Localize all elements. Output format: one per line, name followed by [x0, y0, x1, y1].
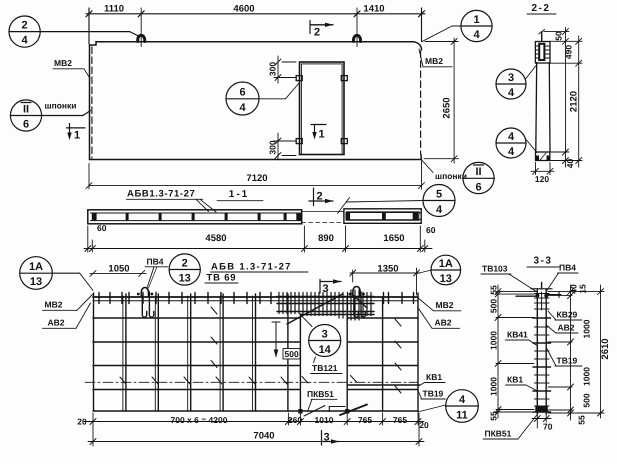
svg-text:55: 55: [489, 285, 499, 295]
svg-text:765: 765: [358, 415, 372, 425]
svg-text:500: 500: [582, 393, 592, 407]
svg-text:2120: 2120: [569, 91, 580, 112]
svg-text:20: 20: [419, 420, 429, 430]
svg-text:4: 4: [508, 131, 515, 143]
svg-text:шпонки: шпонки: [435, 171, 467, 181]
svg-text:4: 4: [473, 29, 480, 41]
svg-text:КВ29: КВ29: [557, 310, 578, 320]
svg-text:20: 20: [77, 417, 87, 427]
svg-text:500: 500: [285, 349, 299, 359]
svg-text:2: 2: [22, 20, 28, 32]
svg-text:490: 490: [564, 45, 574, 59]
svg-text:КВ1: КВ1: [507, 375, 523, 385]
svg-text:1010: 1010: [315, 415, 334, 425]
svg-text:ПВ4: ПВ4: [147, 257, 164, 267]
svg-text:4: 4: [508, 87, 515, 99]
svg-text:1110: 1110: [104, 4, 124, 15]
svg-text:3: 3: [322, 329, 328, 341]
svg-text:МВ2: МВ2: [425, 56, 443, 66]
svg-text:1650: 1650: [383, 233, 404, 244]
svg-text:АБВ 1.3-71-27: АБВ 1.3-71-27: [211, 262, 292, 273]
svg-text:МВ2: МВ2: [45, 300, 63, 310]
svg-text:7120: 7120: [246, 173, 267, 184]
svg-text:300: 300: [268, 62, 278, 76]
svg-text:МВ2: МВ2: [54, 58, 72, 68]
svg-text:АВ2: АВ2: [48, 318, 65, 328]
svg-text:55: 55: [577, 415, 587, 425]
svg-text:700 х 6 = 4200: 700 х 6 = 4200: [171, 415, 228, 425]
svg-text:4: 4: [22, 35, 29, 47]
svg-text:2-2: 2-2: [532, 3, 551, 14]
svg-text:6: 6: [23, 119, 29, 131]
svg-text:13: 13: [179, 273, 191, 285]
svg-text:890: 890: [318, 233, 334, 244]
svg-text:4: 4: [239, 102, 246, 114]
svg-text:1000: 1000: [489, 331, 499, 350]
svg-text:260: 260: [288, 415, 302, 425]
svg-text:15: 15: [578, 284, 588, 294]
svg-text:АВ2: АВ2: [435, 318, 452, 328]
svg-text:1: 1: [473, 14, 479, 26]
svg-text:ПВ4: ПВ4: [559, 263, 576, 273]
svg-text:13: 13: [440, 273, 452, 285]
svg-text:1000: 1000: [582, 319, 592, 338]
svg-text:1050: 1050: [108, 264, 129, 275]
svg-text:2610: 2610: [600, 338, 611, 359]
svg-text:АВ2: АВ2: [558, 323, 575, 333]
svg-text:КВ1: КВ1: [426, 372, 442, 382]
svg-text:14: 14: [319, 344, 332, 356]
svg-text:шпонки: шпонки: [45, 101, 77, 111]
svg-text:МВ2: МВ2: [436, 300, 454, 310]
svg-text:40: 40: [565, 159, 575, 169]
svg-text:4: 4: [459, 394, 466, 406]
svg-text:1000: 1000: [582, 367, 592, 386]
svg-text:2650: 2650: [442, 97, 453, 118]
svg-text:II: II: [23, 104, 29, 116]
svg-text:II: II: [475, 166, 481, 178]
svg-text:2: 2: [182, 258, 188, 270]
svg-text:6: 6: [475, 182, 481, 194]
svg-text:1: 1: [319, 129, 325, 141]
svg-text:60: 60: [426, 225, 436, 235]
svg-text:3-3: 3-3: [534, 256, 553, 267]
svg-text:ТВ19: ТВ19: [423, 389, 444, 399]
svg-text:ПКВ51: ПКВ51: [485, 429, 512, 439]
svg-text:4: 4: [436, 204, 443, 216]
svg-text:500: 500: [489, 299, 499, 313]
svg-text:1350: 1350: [377, 264, 398, 275]
svg-text:ТВ121: ТВ121: [312, 363, 338, 373]
svg-text:5: 5: [436, 189, 442, 201]
svg-text:2: 2: [314, 27, 320, 39]
svg-text:ПКВ51: ПКВ51: [307, 389, 334, 399]
svg-text:1А: 1А: [29, 261, 43, 273]
svg-text:3: 3: [508, 72, 514, 84]
svg-text:120: 120: [535, 174, 549, 184]
svg-text:1410: 1410: [363, 4, 384, 15]
svg-text:6: 6: [239, 87, 245, 99]
svg-text:4600: 4600: [233, 4, 254, 15]
svg-text:1А: 1А: [439, 258, 453, 270]
svg-text:ТВ 69: ТВ 69: [207, 273, 237, 284]
svg-text:60: 60: [97, 223, 107, 233]
svg-text:7040: 7040: [253, 431, 274, 442]
svg-text:13: 13: [30, 276, 42, 288]
svg-text:1-1: 1-1: [229, 189, 249, 200]
svg-text:55: 55: [489, 411, 499, 421]
svg-text:50: 50: [554, 31, 564, 41]
svg-text:765: 765: [393, 415, 407, 425]
svg-text:АБВ1.3-71-27: АБВ1.3-71-27: [127, 189, 195, 200]
svg-text:11: 11: [456, 410, 468, 422]
svg-text:300: 300: [268, 140, 278, 154]
svg-text:4580: 4580: [205, 233, 226, 244]
svg-text:ТВ19: ТВ19: [557, 356, 578, 366]
svg-text:1000: 1000: [489, 377, 499, 396]
svg-text:70: 70: [543, 422, 553, 432]
svg-text:ТВ103: ТВ103: [482, 264, 508, 274]
svg-text:2: 2: [317, 191, 323, 203]
svg-text:1: 1: [74, 130, 80, 142]
svg-text:КВ41: КВ41: [507, 330, 528, 340]
svg-text:3: 3: [323, 283, 329, 295]
svg-text:4: 4: [508, 146, 515, 158]
